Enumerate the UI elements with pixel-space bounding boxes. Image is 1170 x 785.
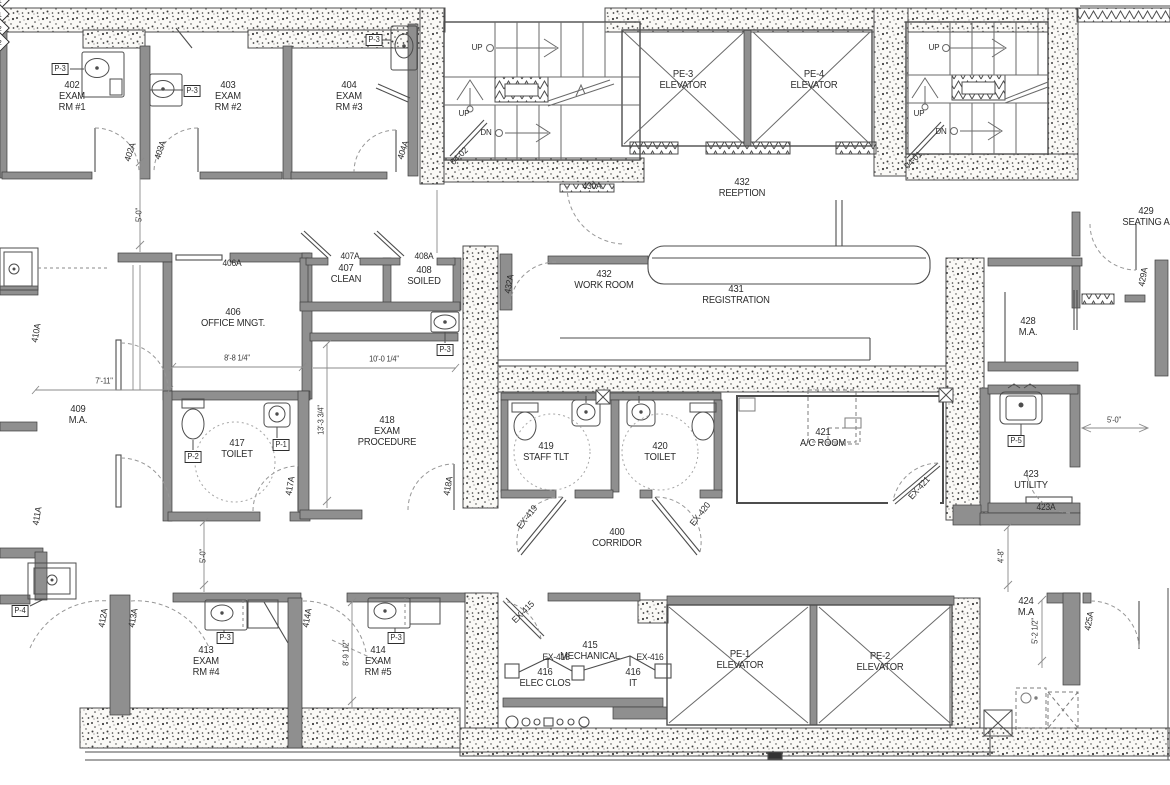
registration-counter xyxy=(498,200,1077,362)
floor-plan-canvas: 402 EXAM RM #1403 EXAM RM #2404 EXAM RM … xyxy=(0,0,1170,785)
equipment xyxy=(596,388,1078,736)
floor-plan-linework xyxy=(0,0,1170,785)
fixture-dashed-details xyxy=(38,268,405,630)
stair-landing-newel-right xyxy=(962,82,995,94)
stair-landing-newel xyxy=(505,84,538,96)
